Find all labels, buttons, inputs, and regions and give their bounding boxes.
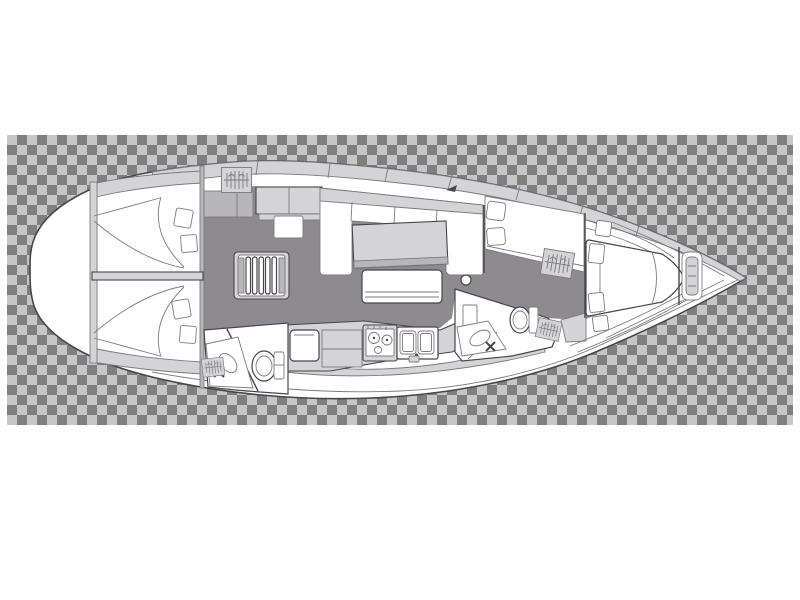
center-bench bbox=[362, 270, 442, 303]
burner bbox=[375, 347, 382, 354]
stove bbox=[363, 325, 397, 361]
hanging-locker-icon bbox=[540, 249, 574, 279]
companionway-steps bbox=[234, 252, 289, 299]
pillow bbox=[180, 234, 197, 252]
aft-head bbox=[201, 323, 288, 394]
pillow bbox=[588, 292, 605, 312]
hanging-locker-icon bbox=[222, 168, 252, 193]
aft-cabins-dividing-wall bbox=[92, 272, 203, 280]
aft-head-cistern bbox=[274, 352, 284, 379]
hanging-locker-icon bbox=[201, 357, 224, 377]
galley-locker bbox=[322, 330, 362, 367]
seat-cushion bbox=[486, 227, 505, 245]
pillow bbox=[172, 299, 192, 320]
pillow bbox=[179, 325, 196, 343]
fwd-hatch bbox=[595, 220, 612, 237]
yacht-floorplan bbox=[0, 0, 800, 600]
side-table bbox=[274, 216, 303, 238]
screenshot-canvas bbox=[0, 0, 800, 600]
double-sink bbox=[397, 327, 438, 362]
pillow bbox=[174, 208, 194, 229]
seat-cushion bbox=[486, 201, 506, 221]
pillow bbox=[588, 243, 605, 263]
fwd-hatch bbox=[592, 315, 609, 332]
companionway-cabinet bbox=[204, 191, 253, 217]
mast-post bbox=[461, 275, 471, 285]
